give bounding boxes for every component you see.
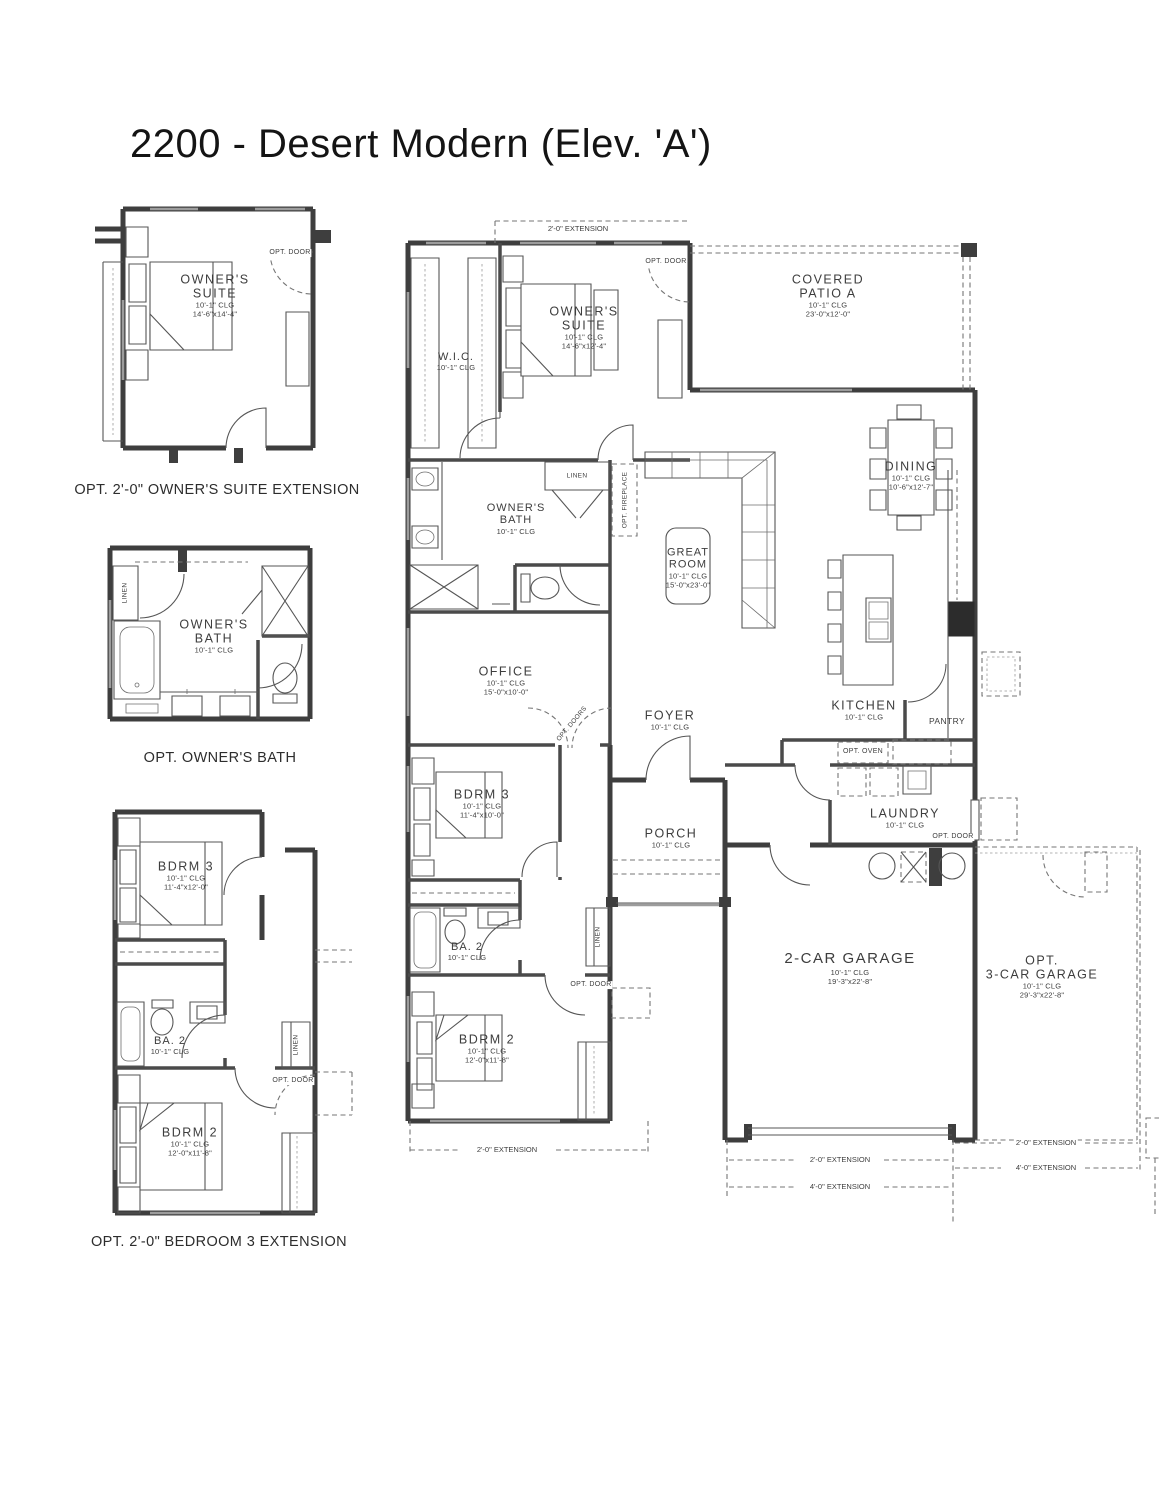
room-label-opt-ba2: BA. 2 10'-1" CLG (151, 1035, 190, 1057)
room-label-foyer: FOYER 10'-1" CLG (645, 708, 696, 731)
opt-oven-label: OPT. OVEN (842, 748, 884, 756)
room-name: OWNER'S (487, 502, 546, 514)
room-dims: 23'-0"x12'-0" (792, 311, 864, 319)
room-label-opt-owners-suite: OWNER'S SUITE 10'-1" CLG 14'-6"x14'-4" (180, 273, 249, 320)
island-sink (869, 602, 888, 639)
caption-opt-owners-bath: OPT. OWNER'S BATH (144, 750, 297, 766)
room-name: 2-CAR GARAGE (784, 951, 915, 968)
pantry-label: PANTRY (929, 717, 965, 727)
room-label-covered-patio: COVERED PATIO A 10'-1" CLG 23'-0"x12'-0" (792, 273, 864, 320)
extension-label-garage-4: 4'-0" EXTENSION (808, 1183, 872, 1191)
linen-closet (545, 462, 609, 518)
room-name: GREAT (666, 546, 711, 558)
room-dims: 15'-0"x10'-0" (479, 689, 534, 697)
ceiling-height: 10'-1" CLG (162, 1141, 218, 1149)
room-name: COVERED (792, 273, 864, 287)
toilet (531, 577, 559, 599)
room-name: BATH (487, 514, 546, 526)
ceiling-height: 10'-1" CLG (479, 680, 534, 688)
tub-interior (414, 912, 436, 968)
bed-fold (140, 895, 172, 925)
room-dims: 11'-4"x12'-0" (158, 884, 214, 892)
water-softener (939, 853, 965, 879)
room-label-office: OFFICE 10'-1" CLG 15'-0"x10'-0" (479, 665, 534, 698)
ceiling-height: 10'-1" CLG (645, 723, 696, 731)
room-label-owners-bath: OWNER'S BATH 10'-1" CLG (487, 502, 546, 536)
ceiling-height: 10'-1" CLG (666, 572, 711, 580)
door-arc (226, 408, 266, 448)
main-plan (408, 221, 1159, 1222)
toilet (151, 1009, 173, 1035)
room-dims: 10'-6"x12'-7" (885, 484, 938, 492)
room-name: OWNER'S (549, 305, 618, 319)
room-label-ba2: BA. 2 10'-1" CLG (448, 941, 487, 963)
room-label-bdrm3: BDRM 3 10'-1" CLG 11'-4"x10'-0" (454, 788, 510, 821)
floorplan-page: 2200 - Desert Modern (Elev. 'A') (0, 0, 1159, 1500)
ceiling-height: 10'-1" CLG (180, 302, 249, 310)
bed-fold (521, 342, 553, 376)
laundry-sink (903, 766, 931, 794)
opt-door-label: OPT. DOOR (271, 1077, 314, 1085)
room-name: DINING (885, 460, 938, 474)
utility-x (901, 852, 926, 882)
extension-label-optgarage-2: 2'-0" EXTENSION (1014, 1139, 1078, 1147)
garage-door (616, 903, 952, 1135)
room-label-dining: DINING 10'-1" CLG 10'-6"x12'-7" (885, 460, 938, 493)
toilet (273, 663, 297, 693)
ceiling-height: 10'-1" CLG (437, 364, 476, 372)
room-dims: 11'-4"x10'-0" (454, 812, 510, 820)
linen-label: LINEN (292, 1035, 299, 1056)
room-dims: 12'-0"x11'-8" (162, 1150, 218, 1158)
opt-fireplace-label: OPT. FIREPLACE (621, 472, 628, 529)
walls (95, 209, 313, 448)
room-label-wic: W.I.C. 10'-1" CLG (437, 351, 476, 373)
ceiling-height: 10'-1" CLG (549, 334, 618, 342)
sink (416, 530, 434, 544)
linen-label: LINEN (567, 472, 588, 479)
extension-label-garage-2: 2'-0" EXTENSION (808, 1156, 872, 1164)
opt-bedroom3-extension-plan (115, 812, 352, 1213)
room-name: BA. 2 (151, 1035, 190, 1047)
wall-stub (313, 230, 331, 243)
room-dims: 12'-0"x11'-8" (459, 1057, 515, 1065)
room-dims: 14'-6"x12'-4" (549, 343, 618, 351)
windows (408, 243, 852, 1121)
room-name: KITCHEN (831, 698, 896, 712)
opt-door-dashed (981, 798, 1017, 840)
room-label-opt-owners-bath: OWNER'S BATH 10'-1" CLG (179, 617, 248, 654)
room-name: BDRM 3 (454, 788, 510, 802)
ceiling-height: 10'-1" CLG (151, 1048, 190, 1056)
opt-door-label: OPT. DOOR (569, 981, 612, 989)
room-name: ROOM (666, 559, 711, 571)
refrigerator (948, 602, 974, 636)
opt-door-label: OPT. DOOR (644, 258, 687, 266)
wall-stub (178, 548, 187, 572)
ceiling-height: 10'-1" CLG (179, 646, 248, 654)
extension-label-bdrm2: 2'-0" EXTENSION (475, 1146, 539, 1154)
room-name: BA. 2 (448, 941, 487, 953)
ceiling-height: 10'-1" CLG (158, 875, 214, 883)
room-name: OWNER'S (180, 273, 249, 287)
ceiling-height: 10'-1" CLG (784, 969, 915, 977)
room-name: BATH (179, 631, 248, 645)
caption-opt-suite-extension: OPT. 2'-0" OWNER'S SUITE EXTENSION (74, 482, 359, 498)
room-name: FOYER (645, 708, 696, 722)
extension-label-top: 2'-0" EXTENSION (546, 225, 610, 233)
door-arcs (182, 857, 275, 1108)
room-name: 3-CAR GARAGE (986, 968, 1098, 982)
room-name: OFFICE (479, 665, 534, 679)
linen-label: LINEN (594, 927, 601, 948)
room-label-kitchen: KITCHEN 10'-1" CLG (831, 698, 896, 721)
room-label-porch: PORCH 10'-1" CLG (645, 826, 698, 849)
room-name: OPT. (986, 954, 1098, 968)
opt-door-label: OPT. DOOR (931, 833, 974, 841)
linen-label: LINEN (121, 583, 128, 604)
room-name: W.I.C. (437, 351, 476, 363)
caption-opt-bdrm3-extension: OPT. 2'-0" BEDROOM 3 EXTENSION (91, 1234, 347, 1250)
room-label-bdrm2: BDRM 2 10'-1" CLG 12'-0"x11'-8" (459, 1033, 515, 1066)
room-name: SUITE (549, 319, 618, 333)
room-name: PORCH (645, 826, 698, 840)
wall-stub (234, 448, 243, 463)
wall-stub (169, 448, 178, 463)
ceiling-height: 10'-1" CLG (792, 302, 864, 310)
ceiling-height: 10'-1" CLG (885, 475, 938, 483)
room-dims: 19'-3"x22'-8" (784, 978, 915, 986)
extension-label-optgarage-4: 4'-0" EXTENSION (1014, 1164, 1078, 1172)
opt-door-arc (270, 252, 313, 294)
ceiling-height: 10'-1" CLG (831, 713, 896, 721)
ceiling-height: 10'-1" CLG (986, 983, 1098, 991)
closet (282, 1133, 315, 1213)
garage-door-stub (744, 1124, 752, 1140)
room-name: LAUNDRY (870, 806, 940, 820)
ceiling-height: 10'-1" CLG (448, 954, 487, 962)
bed-fold (150, 314, 184, 350)
porch-post (719, 897, 731, 907)
ceiling-height: 10'-1" CLG (459, 1048, 515, 1056)
room-dims: 29'-3"x22'-8" (986, 992, 1098, 1000)
partitions (115, 940, 315, 1068)
patio-post (961, 243, 977, 257)
dashed-options (412, 221, 1020, 1018)
ceiling-height: 10'-1" CLG (870, 821, 940, 829)
tub-interior (121, 1007, 140, 1061)
room-name: PATIO A (792, 287, 864, 301)
room-name: SUITE (180, 287, 249, 301)
room-name: BDRM 2 (459, 1033, 515, 1047)
room-name: OWNER'S (179, 617, 248, 631)
room-dims: 15'-0"x23'-0" (666, 581, 711, 589)
ceiling-height: 10'-1" CLG (454, 803, 510, 811)
ceiling-height: 10'-1" CLG (487, 528, 546, 536)
tub-drain (135, 683, 139, 687)
laundry-sink-basin (908, 771, 926, 789)
opt-suite-extension-plan (95, 209, 331, 463)
water-heater (869, 853, 895, 879)
ceiling-height: 10'-1" CLG (645, 841, 698, 849)
room-name: BDRM 3 (158, 860, 214, 874)
room-label-great-room: GREAT ROOM 10'-1" CLG 15'-0"x23'-0" (666, 546, 711, 589)
utility-wall (929, 848, 942, 886)
room-label-owners-suite: OWNER'S SUITE 10'-1" CLG 14'-6"x12'-4" (549, 305, 618, 352)
room-label-opt-bdrm3: BDRM 3 10'-1" CLG 11'-4"x12'-0" (158, 860, 214, 893)
garage-door-stub (948, 1124, 956, 1140)
sink (416, 472, 434, 486)
room-label-garage: 2-CAR GARAGE 10'-1" CLG 19'-3"x22'-8" (784, 951, 915, 987)
room-dims: 14'-6"x14'-4" (180, 311, 249, 319)
opt-door-label: OPT. DOOR (268, 249, 311, 257)
room-label-opt-3car-garage: OPT. 3-CAR GARAGE 10'-1" CLG 29'-3"x22'-… (986, 954, 1098, 1001)
room-name: BDRM 2 (162, 1126, 218, 1140)
room-label-laundry: LAUNDRY 10'-1" CLG (870, 806, 940, 829)
room-label-opt-bdrm2: BDRM 2 10'-1" CLG 12'-0"x11'-8" (162, 1126, 218, 1159)
porch-post (606, 897, 618, 907)
